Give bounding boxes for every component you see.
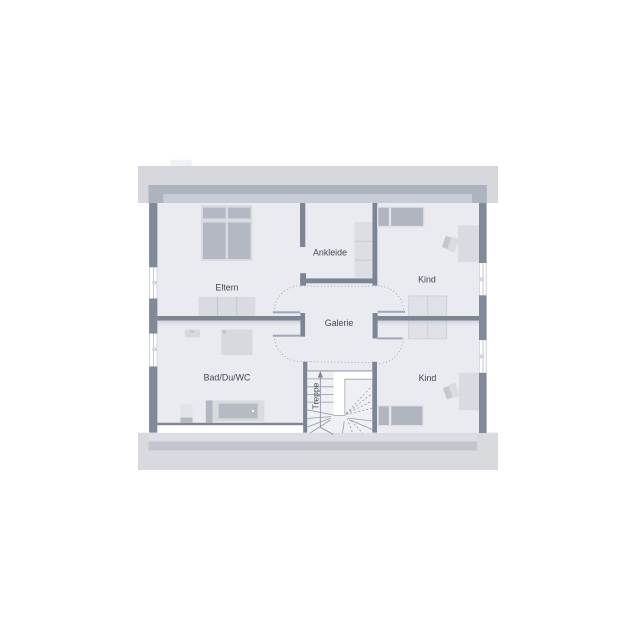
svg-text:Treppe: Treppe xyxy=(311,382,321,409)
svg-text:Galerie: Galerie xyxy=(325,318,354,328)
svg-text:Ankleide: Ankleide xyxy=(313,248,347,258)
svg-text:Kind: Kind xyxy=(419,373,437,383)
svg-text:Eltern: Eltern xyxy=(215,283,238,293)
svg-text:Kind: Kind xyxy=(418,275,436,285)
svg-text:Bad/Du/WC: Bad/Du/WC xyxy=(204,372,251,382)
